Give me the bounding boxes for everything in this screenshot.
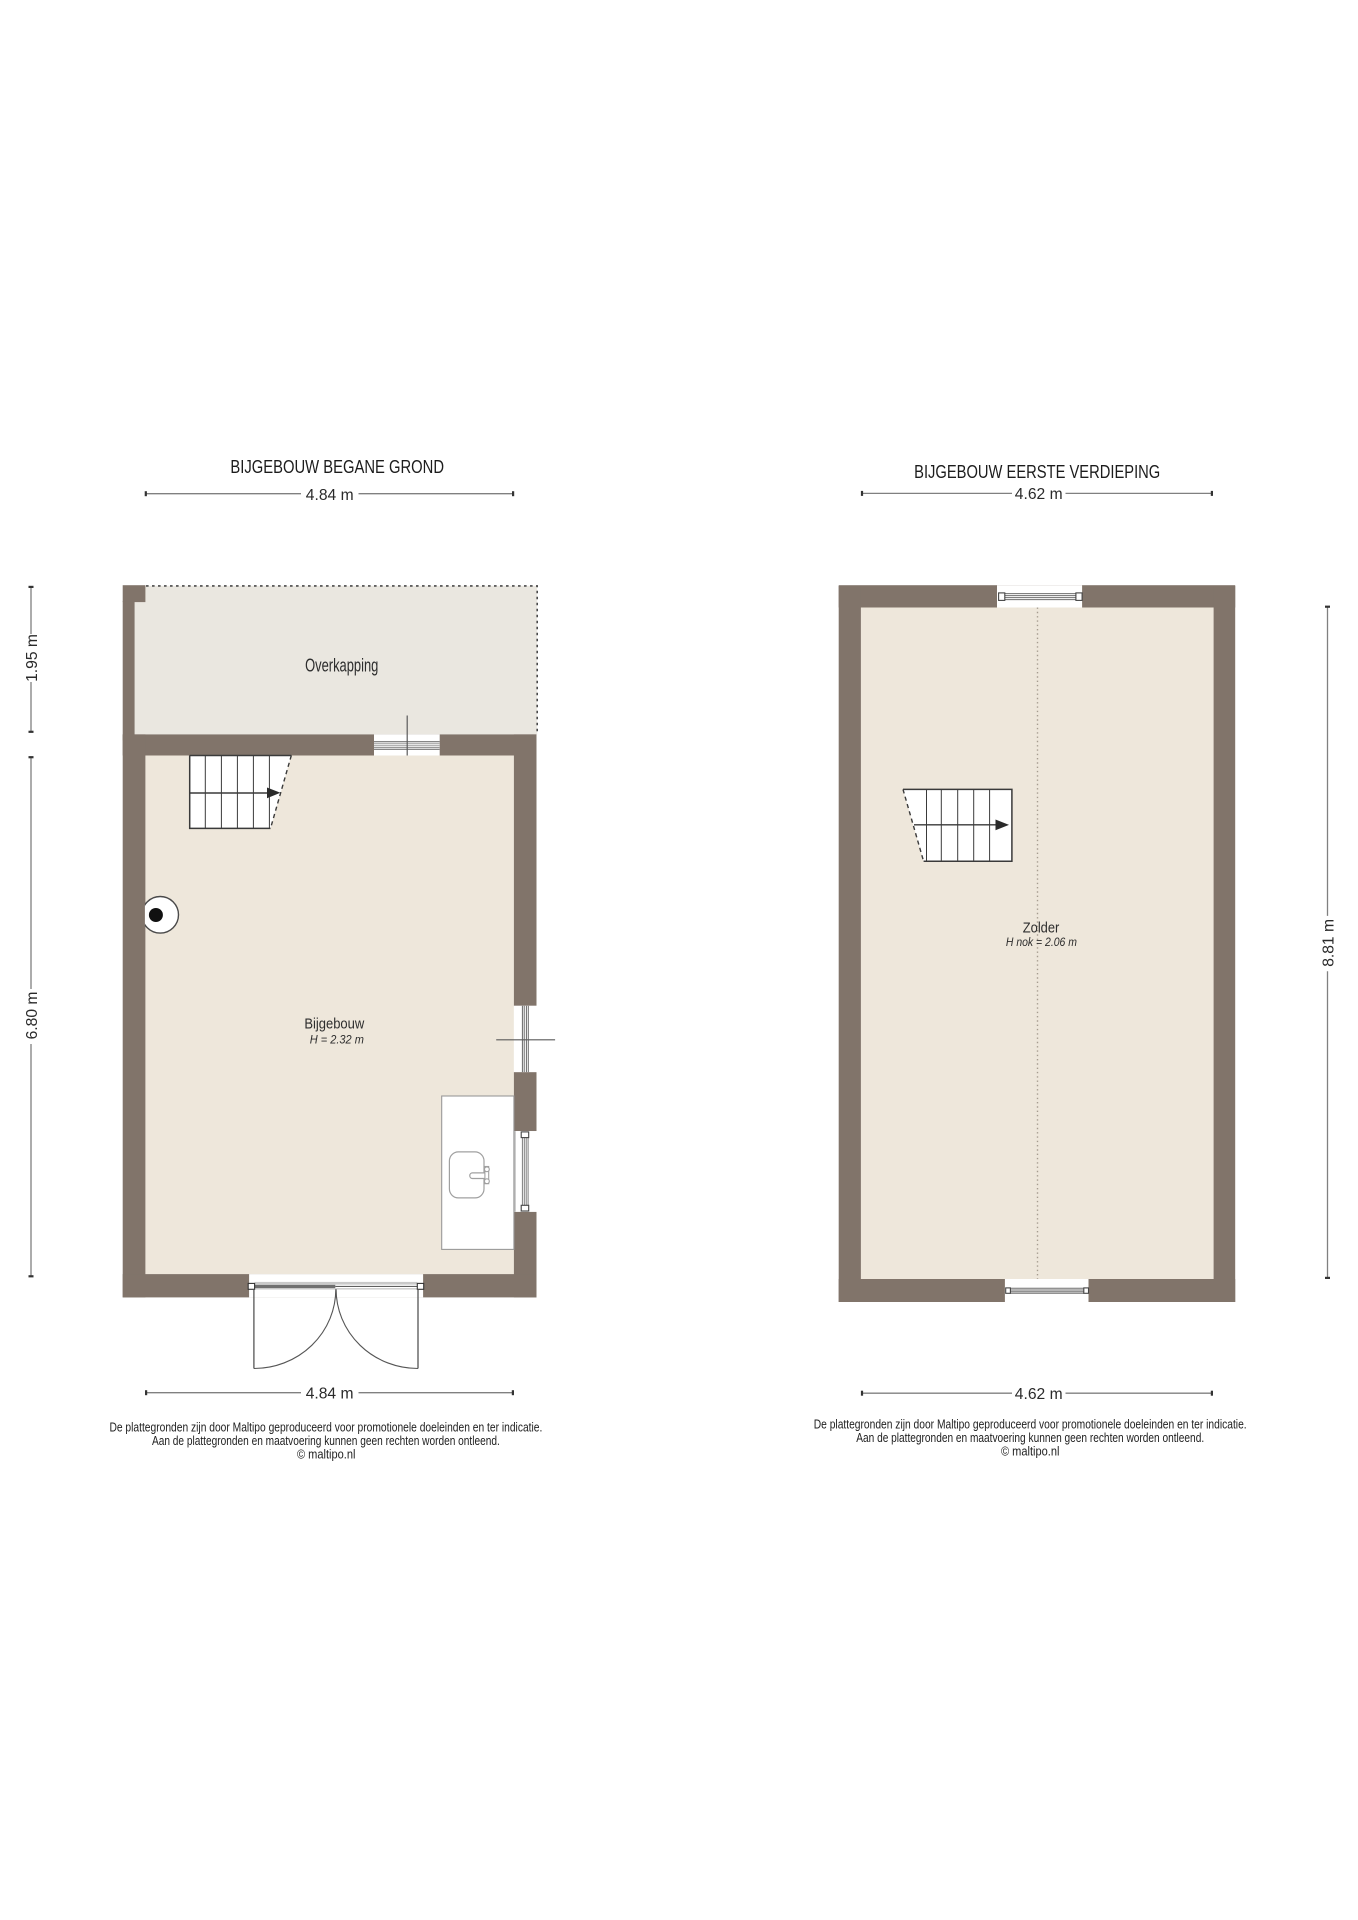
svg-text:BIJGEBOUW EERSTE VERDIEPING: BIJGEBOUW EERSTE VERDIEPING — [914, 461, 1160, 482]
svg-text:De plattegronden zijn door Mal: De plattegronden zijn door Maltipo gepro… — [109, 1420, 542, 1434]
svg-text:© maltipo.nl: © maltipo.nl — [297, 1447, 355, 1462]
svg-text:4.84 m: 4.84 m — [306, 1385, 354, 1402]
svg-text:Zolder: Zolder — [1023, 919, 1060, 936]
svg-text:Bijgebouw: Bijgebouw — [304, 1014, 365, 1031]
svg-text:H = 2.32 m: H = 2.32 m — [310, 1034, 364, 1046]
svg-text:1.95 m: 1.95 m — [24, 634, 41, 682]
svg-text:4.62 m: 4.62 m — [1015, 1386, 1063, 1403]
svg-text:De plattegronden zijn door Mal: De plattegronden zijn door Maltipo gepro… — [814, 1417, 1247, 1431]
svg-text:© maltipo.nl: © maltipo.nl — [1001, 1444, 1059, 1459]
svg-text:Overkapping: Overkapping — [305, 657, 378, 677]
svg-text:6.80 m: 6.80 m — [24, 992, 41, 1040]
svg-text:BIJGEBOUW BEGANE GROND: BIJGEBOUW BEGANE GROND — [230, 456, 444, 477]
svg-text:H nok = 2.06 m: H nok = 2.06 m — [1006, 937, 1077, 950]
svg-text:4.84 m: 4.84 m — [306, 487, 354, 504]
svg-text:4.62 m: 4.62 m — [1015, 486, 1063, 503]
svg-text:8.81 m: 8.81 m — [1320, 919, 1337, 967]
